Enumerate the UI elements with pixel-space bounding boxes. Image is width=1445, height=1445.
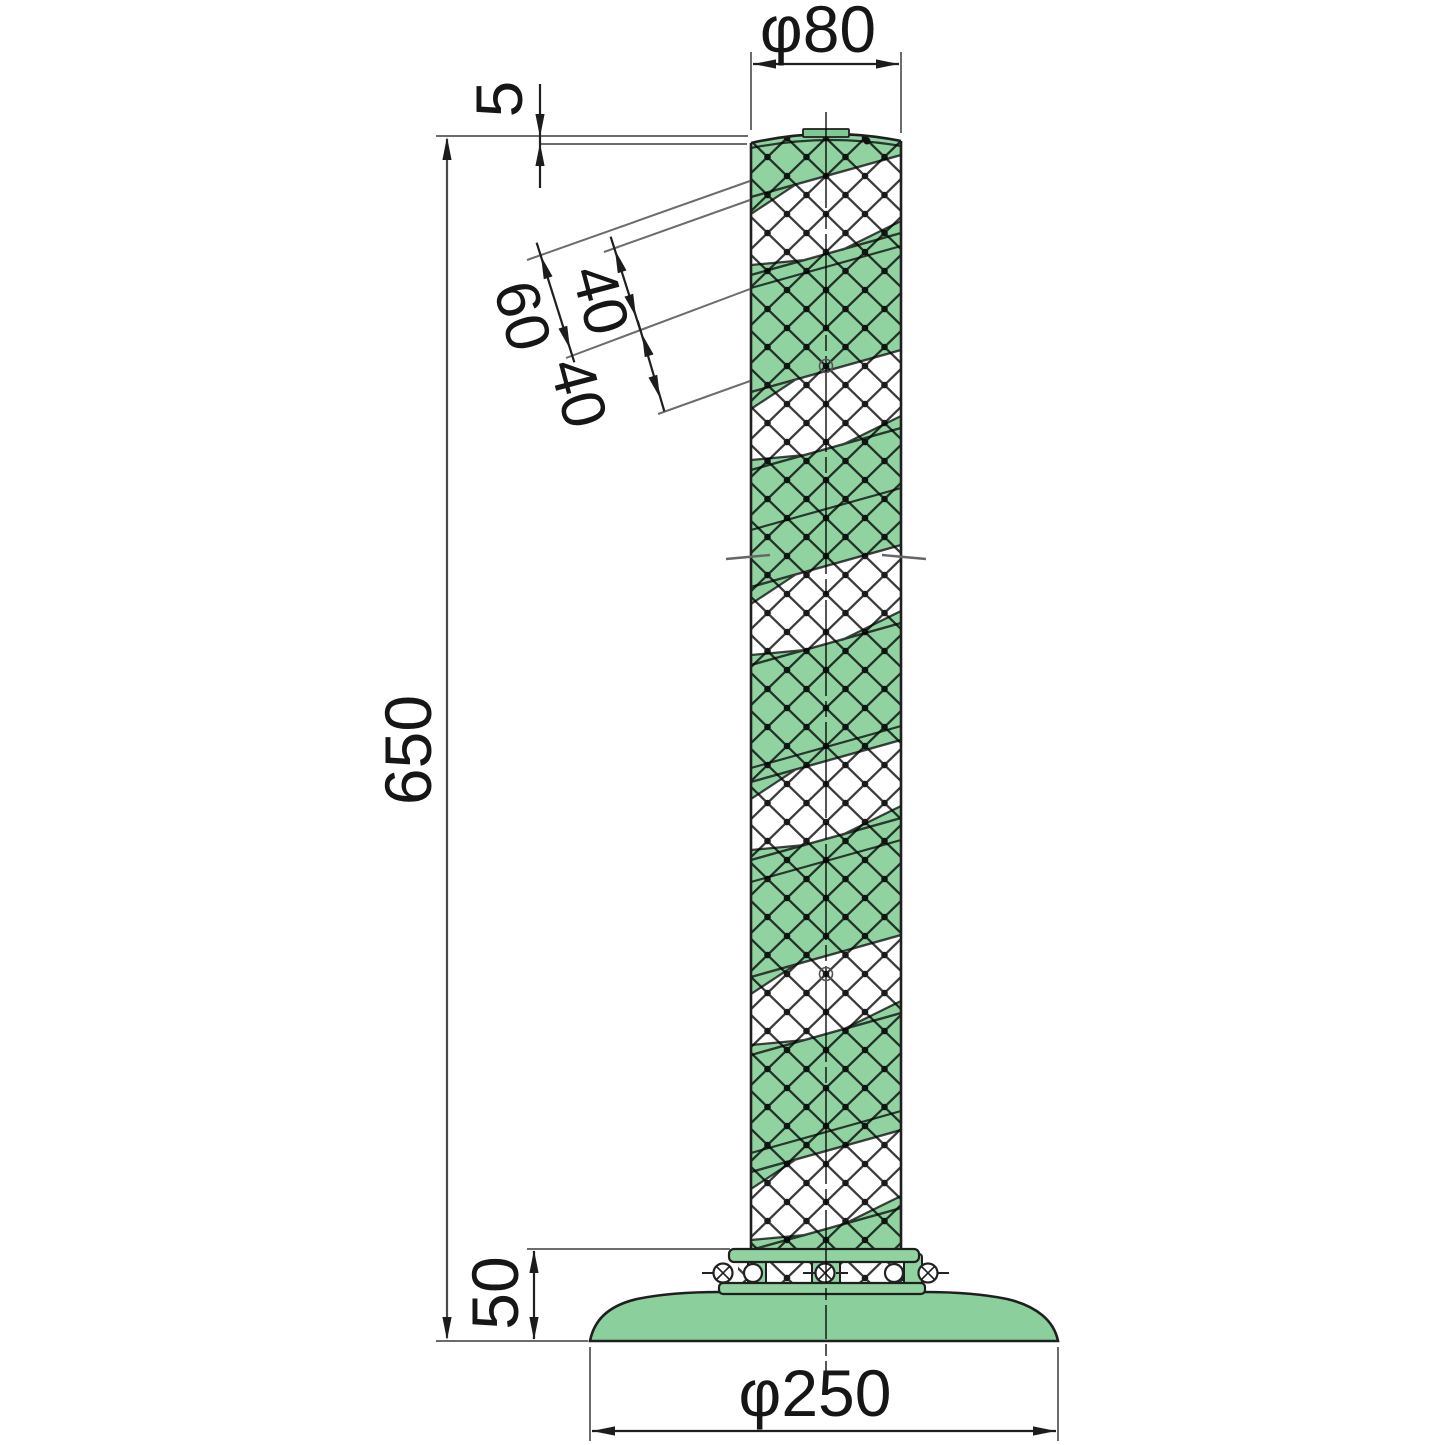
svg-text:5: 5 [462,81,536,118]
svg-text:50: 50 [458,1256,532,1329]
svg-text:φ250: φ250 [739,1356,892,1430]
svg-text:650: 650 [371,695,445,805]
svg-text:φ80: φ80 [760,0,876,66]
